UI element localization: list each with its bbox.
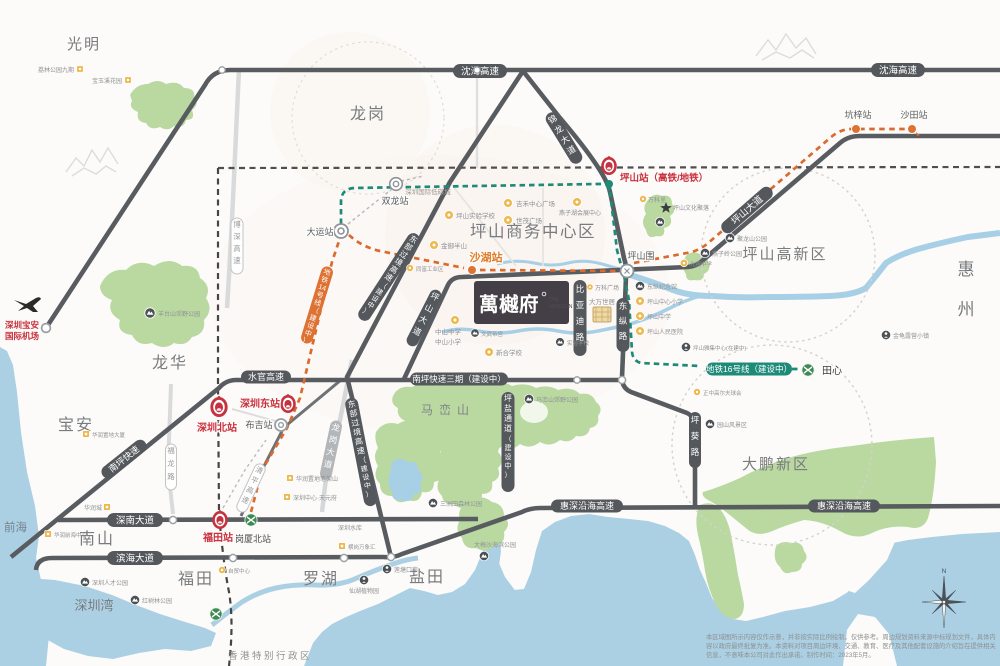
svg-text:东纵路: 东纵路	[619, 301, 628, 341]
svg-text:滨海大道: 滨海大道	[116, 552, 155, 564]
svg-text:坑梓站: 坑梓站	[844, 109, 871, 120]
svg-text:THE: THE	[549, 297, 560, 303]
svg-text:园山风景区: 园山风景区	[717, 421, 747, 429]
svg-text:N: N	[942, 568, 947, 575]
svg-text:万科里: 万科里	[648, 196, 666, 204]
svg-text:深圳国际低碳城: 深圳国际低碳城	[405, 187, 451, 196]
svg-text:坪山人民医院: 坪山人民医院	[647, 328, 683, 336]
svg-text:燕子岭公园: 燕子岭公园	[712, 250, 742, 258]
svg-text:深圳北站: 深圳北站	[197, 421, 237, 434]
svg-text:水官高速: 水官高速	[248, 371, 284, 382]
svg-text:福田: 福田	[178, 570, 214, 588]
svg-text:宝玉溪花园: 宝玉溪花园	[92, 77, 122, 85]
svg-text:金龟露营小镇: 金龟露营小镇	[893, 332, 929, 340]
svg-text:坪山中学: 坪山中学	[647, 313, 671, 321]
svg-text:光祖中学: 光祖中学	[690, 260, 713, 268]
svg-text:深南大道: 深南大道	[116, 514, 155, 526]
svg-text:坪山雅集中心(在建中): 坪山雅集中心(在建中)	[693, 344, 746, 352]
svg-text:坪山站（高铁/地铁）: 坪山站（高铁/地铁）	[620, 172, 708, 184]
svg-text:沙田站: 沙田站	[900, 109, 927, 120]
svg-text:三洲田森林公园: 三洲田森林公园	[440, 500, 482, 508]
svg-text:红树林公园: 红树林公园	[142, 597, 172, 605]
svg-text:信息，不意味本公司对此作出承诺。制作时间：2023年5月。: 信息，不意味本公司对此作出承诺。制作时间：2023年5月。	[706, 650, 875, 659]
svg-text:坪山实验学校: 坪山实验学校	[456, 211, 496, 220]
svg-text:自贸中心: 自贸中心	[228, 567, 251, 575]
svg-text:万科广场: 万科广场	[595, 284, 619, 292]
svg-text:大运站: 大运站	[306, 226, 333, 237]
svg-text:华润置地笔架山: 华润置地笔架山	[296, 475, 338, 483]
svg-text:莲塘口岸: 莲塘口岸	[394, 566, 418, 574]
svg-text:华润前海中心: 华润前海中心	[54, 531, 88, 539]
svg-text:惠深沿海高速: 惠深沿海高速	[817, 500, 871, 511]
svg-text:华润城: 华润城	[84, 504, 102, 512]
svg-text:深圳人才公园: 深圳人才公园	[92, 579, 128, 587]
svg-text:龙岗: 龙岗	[350, 105, 386, 123]
svg-text:大鹏新区: 大鹏新区	[742, 456, 810, 473]
svg-text:燕子湖会展中心: 燕子湖会展中心	[559, 209, 601, 217]
svg-text:深圳水库: 深圳水库	[338, 524, 362, 532]
svg-text:罗湖: 罗湖	[303, 570, 339, 588]
svg-text:世茂广场: 世茂广场	[516, 216, 543, 225]
svg-text:岗厦北站: 岗厦北站	[235, 533, 271, 544]
svg-text:荔林公园九期: 荔林公园九期	[38, 66, 74, 74]
svg-text:国际机场: 国际机场	[5, 331, 40, 341]
svg-text:前海: 前海	[4, 520, 27, 534]
svg-text:沙湖站: 沙湖站	[470, 250, 503, 264]
svg-text:坪山中心小学: 坪山中心小学	[647, 298, 683, 306]
svg-text:容以政府最终批复为准。本资料对项目周边环境、交通、教育、医疗: 容以政府最终批复为准。本资料对项目周边环境、交通、教育、医疗及其他配套设施的介绍…	[706, 641, 996, 650]
svg-text:惠深沿海高速: 惠深沿海高速	[560, 500, 614, 511]
svg-text:双龙站: 双龙站	[381, 195, 408, 206]
svg-text:坪山围: 坪山围	[627, 251, 654, 261]
svg-text:光明: 光明	[67, 36, 101, 53]
svg-text:福龙路: 福龙路	[167, 446, 175, 481]
svg-text:深圳中心·天元府: 深圳中心·天元府	[293, 494, 337, 502]
svg-text:深圳湾: 深圳湾	[74, 598, 113, 613]
svg-text:萬樾府: 萬樾府	[479, 293, 539, 316]
svg-text:坪盐通道（建设中）: 坪盐通道（建设中）	[504, 394, 512, 479]
svg-text:同富工业区: 同富工业区	[416, 265, 444, 273]
svg-text:实验学校: 实验学校	[567, 339, 590, 347]
svg-text:吉禾中心广场: 吉禾中心广场	[516, 199, 556, 208]
svg-text:横岗万象汇: 横岗万象汇	[348, 543, 376, 551]
svg-text:大梅沙海滨公园: 大梅沙海滨公园	[474, 541, 516, 549]
svg-text:MANSION: MANSION	[549, 304, 573, 310]
svg-text:中山小学: 中山小学	[435, 337, 462, 346]
svg-text:南坪快速三期（建设中）: 南坪快速三期（建设中）	[412, 374, 506, 384]
svg-text:布吉站: 布吉站	[245, 419, 272, 430]
svg-text:仙湖植物园: 仙湖植物园	[349, 587, 379, 595]
svg-text:华润置地大厦: 华润置地大厦	[92, 431, 126, 439]
svg-text:羊台山郊野公园: 羊台山郊野公园	[158, 310, 200, 318]
svg-text:聚龙山公园: 聚龙山公园	[737, 235, 767, 243]
svg-text:文武帝宫: 文武帝宫	[481, 330, 504, 338]
svg-text:福田站: 福田站	[202, 531, 233, 544]
svg-text:坪葵路: 坪葵路	[691, 415, 700, 457]
svg-text:沈海高速: 沈海高速	[879, 64, 918, 76]
svg-text:深圳东站: 深圳东站	[240, 397, 280, 410]
svg-text:新合学校: 新合学校	[496, 348, 523, 357]
svg-text:本区域图所示内容仅作示意，并非按实际比例绘制，仅供参考。周边: 本区域图所示内容仅作示意，并非按实际比例绘制，仅供参考。周边规划资料来源中标规划…	[706, 632, 996, 641]
svg-text:大万世居: 大万世居	[589, 297, 616, 306]
svg-text:香港特别行政区: 香港特别行政区	[228, 650, 312, 662]
svg-text:田心: 田心	[822, 365, 842, 377]
svg-text:地铁16号线（建设中）: 地铁16号线（建设中）	[706, 364, 792, 374]
svg-text:正中高尔夫球会: 正中高尔夫球会	[703, 389, 742, 397]
svg-text:金御半山: 金御半山	[441, 241, 467, 250]
svg-text:深圳宝安: 深圳宝安	[5, 320, 40, 330]
svg-text:东纵纪念馆: 东纵纪念馆	[647, 283, 677, 291]
svg-text:坪山高新区: 坪山高新区	[742, 246, 827, 263]
svg-text:马峦山: 马峦山	[421, 402, 475, 417]
svg-text:坪山文化聚落: 坪山文化聚落	[673, 204, 709, 212]
svg-text:龙华: 龙华	[152, 354, 188, 372]
svg-text:马峦山郊野公园: 马峦山郊野公园	[536, 396, 578, 404]
svg-text:中山中学: 中山中学	[435, 327, 462, 336]
